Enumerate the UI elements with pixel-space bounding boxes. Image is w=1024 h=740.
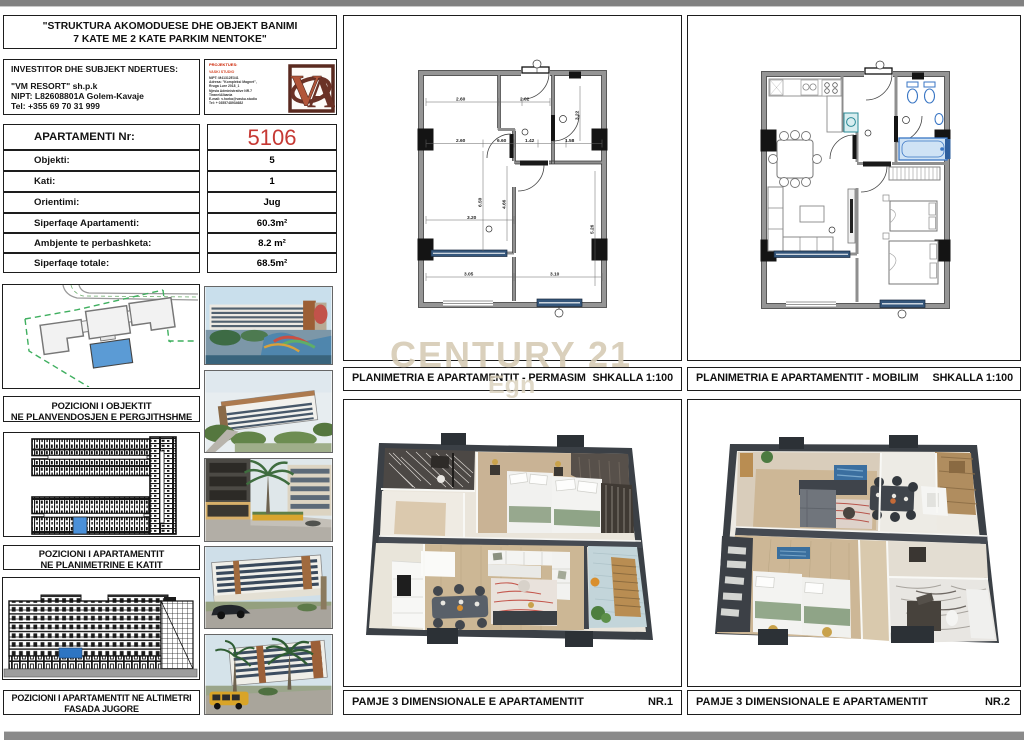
- svg-text:1.58: 1.58: [565, 138, 575, 144]
- svg-text:3.20: 3.20: [467, 215, 477, 221]
- svg-text:6.50: 6.50: [478, 197, 484, 207]
- svg-text:3.05: 3.05: [464, 272, 474, 278]
- svg-text:3.22: 3.22: [575, 110, 581, 120]
- svg-text:2.60: 2.60: [456, 138, 466, 144]
- svg-text:6.60: 6.60: [497, 138, 507, 144]
- svg-text:A: A: [307, 70, 335, 113]
- svg-text:5.26: 5.26: [590, 224, 596, 234]
- svg-text:2.02: 2.02: [520, 97, 530, 103]
- svg-text:4.66: 4.66: [502, 199, 508, 209]
- svg-text:2.60: 2.60: [456, 97, 466, 103]
- svg-text:1.42: 1.42: [525, 138, 535, 144]
- svg-text:3.10: 3.10: [550, 272, 560, 278]
